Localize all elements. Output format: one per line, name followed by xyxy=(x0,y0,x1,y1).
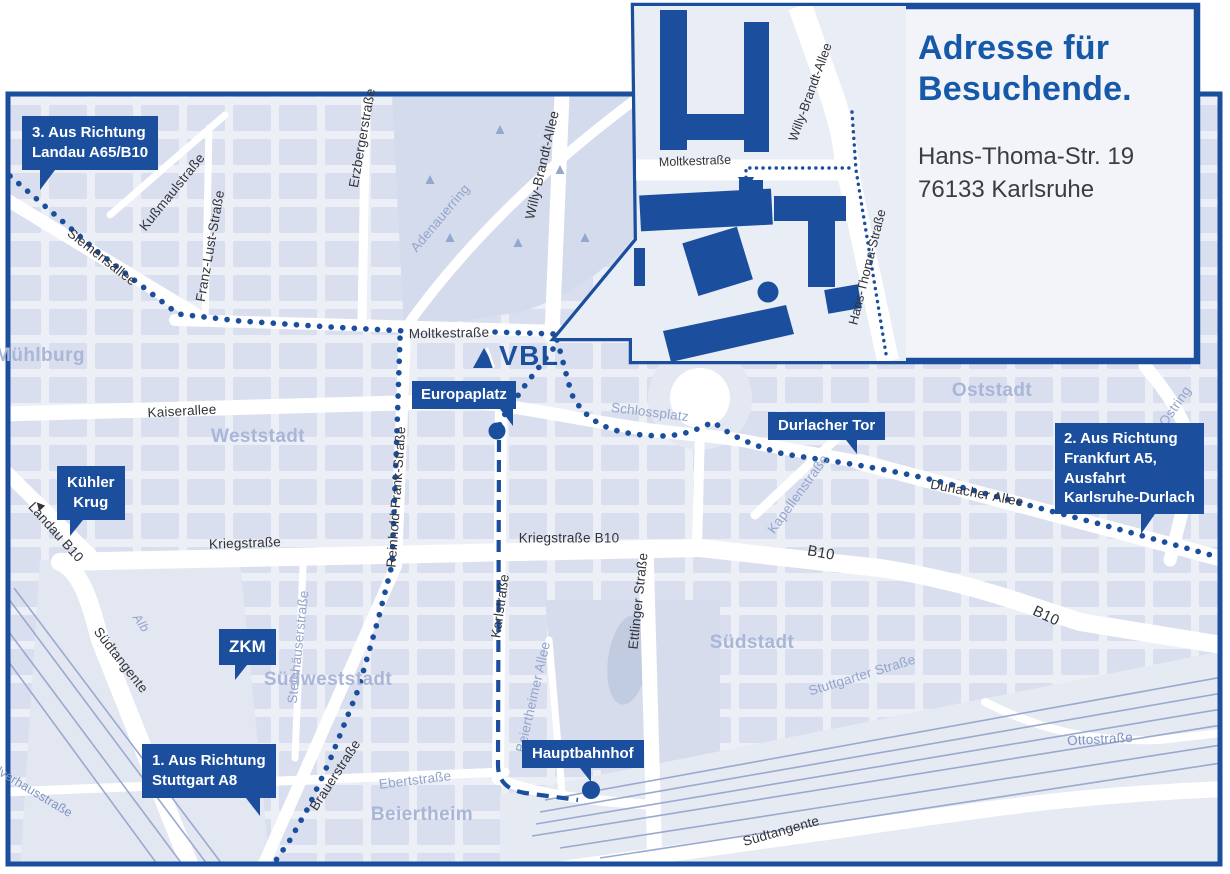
badge-kuehler-krug-line1: Kühler xyxy=(67,473,115,493)
district-label-suedstadt: Südstadt xyxy=(710,632,794,654)
badge-landau-line2: Landau A65/B10 xyxy=(32,143,148,163)
badge-frankfurt: 2. Aus Richtung Frankfurt A5, Ausfahrt K… xyxy=(1055,423,1204,514)
badge-frankfurt-line3: Ausfahrt xyxy=(1064,469,1195,489)
district-label-oststadt: Oststadt xyxy=(952,380,1032,402)
street-label-moltkestrasse: Moltkestraße xyxy=(409,325,490,341)
inset-address-line2: 76133 Karlsruhe xyxy=(918,173,1134,206)
vbl-logo-text: VBL xyxy=(499,342,560,370)
badge-landau: 3. Aus Richtung Landau A65/B10 xyxy=(22,116,158,170)
vbl-triangle-icon xyxy=(471,346,497,370)
badge-durlacher-tor: Durlacher Tor xyxy=(768,412,885,440)
vbl-logo: VBL xyxy=(471,342,560,370)
inset-address: Hans-Thoma-Str. 19 76133 Karlsruhe xyxy=(918,140,1134,206)
badge-zkm-line1: ZKM xyxy=(229,636,266,658)
badge-landau-line1: 3. Aus Richtung xyxy=(32,123,148,143)
inset-heading-line2: Besuchende. xyxy=(918,69,1132,110)
badge-frankfurt-line4: Karlsruhe-Durlach xyxy=(1064,488,1195,508)
badge-europaplatz-line1: Europaplatz xyxy=(421,385,507,405)
badge-kuehler-krug-pointer xyxy=(70,520,83,536)
badge-stuttgart-line1: 1. Aus Richtung xyxy=(152,751,266,771)
inset-heading: Adresse für Besuchende. xyxy=(918,28,1132,110)
badge-hauptbahnhof: Hauptbahnhof xyxy=(522,740,644,768)
badge-frankfurt-line2: Frankfurt A5, xyxy=(1064,449,1195,469)
inset-address-line1: Hans-Thoma-Str. 19 xyxy=(918,140,1134,173)
badge-frankfurt-pointer xyxy=(1141,514,1155,534)
district-label-muehlburg: Mühlburg xyxy=(0,345,85,367)
badge-europaplatz-pointer xyxy=(500,409,513,426)
street-label-kriegstrasse: Kriegstraße xyxy=(209,534,281,552)
hauptbahnhof-stop-dot xyxy=(582,781,600,799)
district-label-suedweststadt: Südweststadt xyxy=(264,669,392,691)
badge-durlacher-tor-pointer xyxy=(846,440,857,454)
inset-heading-line1: Adresse für xyxy=(918,28,1132,69)
district-label-weststadt: Weststadt xyxy=(211,426,305,448)
badge-europaplatz: Europaplatz xyxy=(412,381,516,409)
badge-hauptbahnhof-pointer xyxy=(580,768,591,782)
badge-stuttgart-pointer xyxy=(246,798,260,816)
badge-stuttgart-line2: Stuttgart A8 xyxy=(152,771,266,791)
badge-hauptbahnhof-line1: Hauptbahnhof xyxy=(532,744,634,764)
badge-zkm-pointer xyxy=(235,665,247,680)
badge-kuehler-krug: Kühler Krug xyxy=(57,466,125,520)
badge-kuehler-krug-line2: Krug xyxy=(67,493,115,513)
street-label-kriegstrasse-b10: Kriegstraße B10 xyxy=(519,531,620,546)
vbl-directions-map: Siemensallee Kußmaulstraße Franz-Lust-St… xyxy=(0,0,1230,874)
badge-stuttgart: 1. Aus Richtung Stuttgart A8 xyxy=(142,744,276,798)
badge-durlacher-tor-line1: Durlacher Tor xyxy=(778,416,875,436)
badge-frankfurt-line1: 2. Aus Richtung xyxy=(1064,429,1195,449)
badge-landau-pointer xyxy=(40,170,55,190)
inset-street-label-moltkestrasse: Moltkestraße xyxy=(659,153,732,170)
badge-zkm: ZKM xyxy=(219,629,276,665)
district-label-beiertheim: Beiertheim xyxy=(371,804,473,826)
